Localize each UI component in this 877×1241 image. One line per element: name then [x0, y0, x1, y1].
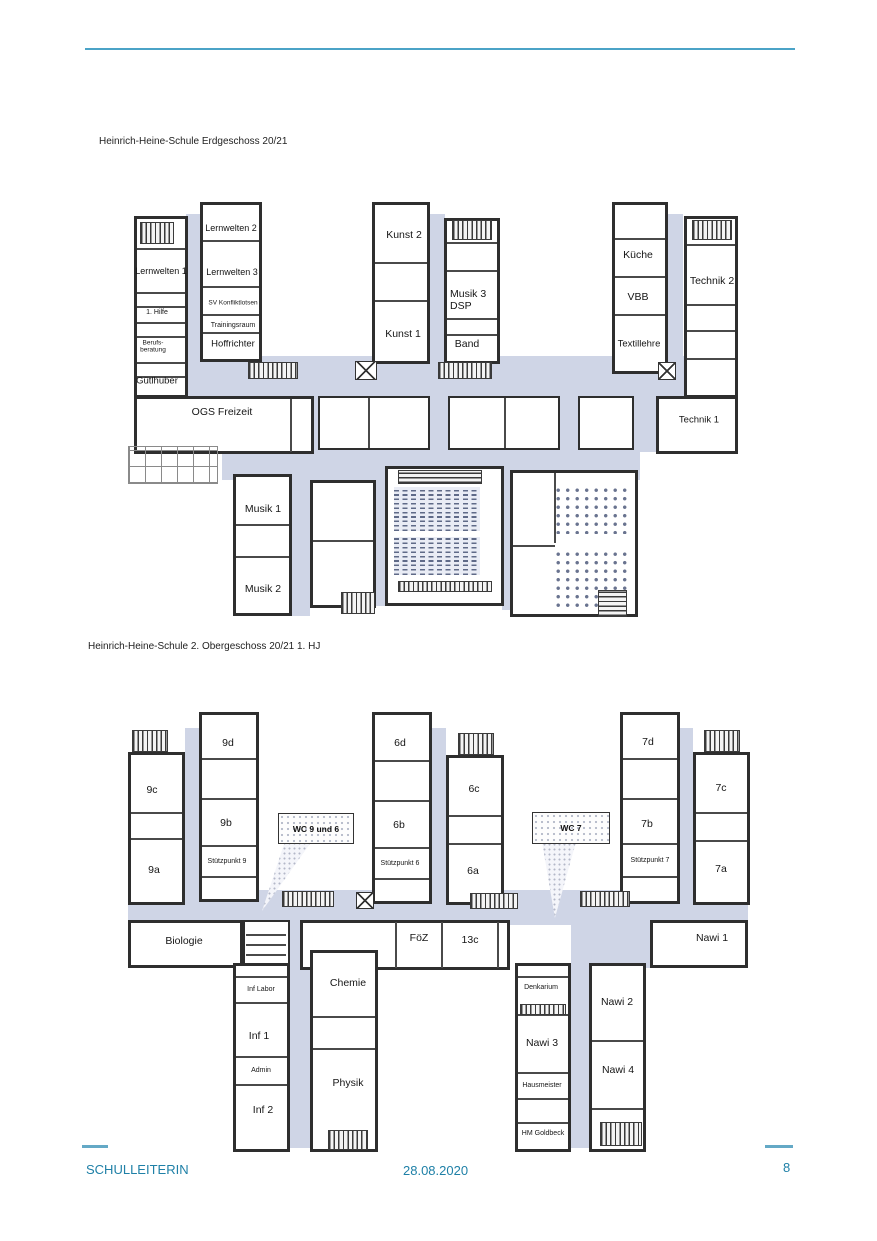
room-label-7d: 7d	[642, 736, 654, 748]
corridor-segment	[430, 396, 448, 452]
wall-line	[236, 556, 289, 558]
wall-line	[137, 322, 185, 324]
seating-rows	[394, 487, 480, 531]
room-label-biologie: Biologie	[165, 935, 202, 947]
wall-line	[449, 843, 501, 845]
wall-line	[375, 800, 429, 802]
stairs-icon	[580, 891, 630, 907]
room-label-9d: 9d	[222, 737, 234, 749]
room-label-9c: 9c	[146, 784, 157, 796]
room-label-stuetzpunkt7: Stützpunkt 7	[631, 857, 670, 865]
room-label-band: Band	[455, 338, 480, 350]
callout-wc-9-und-6: WC 9 und 6	[278, 813, 354, 844]
f2-wing9-left-column	[128, 752, 185, 905]
room-label-lernwelten2: Lernwelten 2	[205, 223, 257, 233]
wall-line	[441, 922, 443, 968]
room-label-stuetzpunkt6: Stützpunkt 6	[381, 860, 420, 868]
room-label-nawi2: Nawi 2	[601, 996, 633, 1008]
f2-wing6-right-column	[446, 755, 504, 905]
room-label-9b: 9b	[220, 817, 232, 829]
room-label-textillehre: Textillehre	[618, 340, 661, 351]
footer-date: 28.08.2020	[403, 1163, 468, 1178]
callout-wc-7: WC 7	[532, 812, 610, 844]
wall-line	[592, 1040, 643, 1042]
corridor-segment	[589, 918, 650, 968]
wall-line	[202, 758, 256, 760]
footer-author: SCHULLEITERIN	[86, 1162, 189, 1177]
wall-line	[615, 314, 665, 316]
room-label-physik: Physik	[333, 1077, 364, 1089]
floor2-title: Heinrich-Heine-Schule 2. Obergeschoss 20…	[88, 641, 320, 652]
room-label-nawi4: Nawi 4	[602, 1064, 634, 1076]
room-label-technik1: Technik 1	[679, 416, 719, 427]
wall-line	[447, 334, 497, 336]
room-label-erste-hilfe: 1. Hilfe	[146, 309, 168, 317]
wall-line	[623, 843, 677, 845]
wall-line	[518, 1098, 568, 1100]
room-label-nawi3: Nawi 3	[526, 1037, 558, 1049]
room-label-7b: 7b	[641, 818, 653, 830]
wall-line	[504, 398, 506, 448]
stairs-icon	[282, 891, 334, 907]
room-label-nawi1: Nawi 1	[696, 932, 728, 944]
corridor-segment	[666, 214, 683, 364]
wall-line	[137, 292, 185, 294]
room-label-inf-labor: Inf Labor	[247, 986, 275, 994]
wall-line	[687, 358, 735, 360]
exterior-steps	[128, 446, 218, 484]
document-page: Heinrich-Heine-Schule Erdgeschoss 20/21	[0, 0, 877, 1241]
corridor-segment	[185, 728, 199, 896]
denkarium-bench-icon	[520, 1004, 566, 1015]
stairs-icon	[132, 730, 168, 752]
wall-line	[203, 286, 259, 288]
wall-line	[375, 262, 427, 264]
stairs-icon	[248, 362, 298, 379]
wall-line	[375, 878, 429, 880]
wall-line	[447, 318, 497, 320]
wall-line	[687, 330, 735, 332]
corridor-segment	[560, 396, 578, 452]
room-label-kueche: Küche	[623, 249, 653, 261]
footer-dash-right	[765, 1145, 793, 1148]
wall-line	[518, 1122, 568, 1124]
wall-line	[137, 362, 185, 364]
floor1-title: Heinrich-Heine-Schule Erdgeschoss 20/21	[99, 136, 287, 147]
stairs-icon	[470, 893, 518, 909]
wall-line	[623, 798, 677, 800]
wall-line	[137, 306, 185, 308]
wall-line	[137, 336, 185, 338]
wall-line	[696, 812, 747, 814]
stairs-icon	[452, 220, 492, 240]
footer-dash-left	[82, 1145, 108, 1148]
wall-line	[236, 1002, 287, 1004]
wall-line	[375, 300, 427, 302]
wall-line	[313, 1048, 375, 1050]
elevator-icon	[355, 361, 377, 380]
wall-line	[687, 304, 735, 306]
f1-block-mid-rooms-3	[578, 396, 634, 450]
room-label-musik1: Musik 1	[245, 503, 281, 515]
room-label-6b: 6b	[393, 819, 405, 831]
wall-line	[246, 944, 286, 946]
room-label-inf1: Inf 1	[249, 1030, 269, 1042]
wall-line	[592, 1108, 643, 1110]
wall-line	[236, 524, 289, 526]
wall-line	[236, 1056, 287, 1058]
room-label-denkarium: Denkarium	[524, 984, 558, 992]
room-label-musik3-dsp: Musik 3 DSP	[450, 288, 498, 312]
wall-line	[615, 238, 665, 240]
room-label-7a: 7a	[715, 863, 727, 875]
wall-line	[137, 248, 185, 250]
wall-line	[696, 840, 747, 842]
room-label-lernwelten3: Lernwelten 3	[206, 267, 258, 277]
corridor-segment	[292, 474, 310, 616]
wall-line	[623, 876, 677, 878]
wall-line	[615, 276, 665, 278]
header-rule	[85, 48, 795, 50]
room-label-6a: 6a	[467, 865, 479, 877]
room-label-vbb: VBB	[627, 291, 648, 303]
wall-line	[447, 270, 497, 272]
room-label-berufsberatung: Berufs-beratung	[131, 340, 175, 355]
wall-line	[236, 976, 287, 978]
room-label-sv-konfliktlotsen: SV Konfliktlotsen	[207, 299, 259, 306]
wall-line	[203, 332, 259, 334]
room-label-7c: 7c	[715, 782, 726, 794]
wall-line	[687, 244, 735, 246]
elevator-icon	[658, 362, 676, 380]
corridor-segment	[634, 396, 656, 452]
wall-line	[623, 758, 677, 760]
wall-line	[313, 540, 373, 542]
wall-line	[368, 398, 370, 448]
wall-line	[395, 922, 397, 968]
room-label-guetlhuber: Gütlhuber	[136, 377, 178, 388]
wall-line	[313, 1016, 375, 1018]
f2-wing7-right-column	[693, 752, 750, 905]
wall-line	[497, 922, 499, 968]
wall-line	[246, 934, 286, 936]
room-label-hm-goldbeck: HM Goldbeck	[522, 1130, 564, 1138]
room-label-kunst2: Kunst 2	[386, 229, 422, 241]
wall-line	[202, 798, 256, 800]
stairs-icon	[458, 733, 494, 755]
wall-line	[131, 838, 182, 840]
room-label-admin: Admin	[251, 1067, 271, 1075]
room-label-technik2: Technik 2	[690, 275, 734, 287]
wall-line	[236, 1084, 287, 1086]
wall-line	[449, 815, 501, 817]
wall-line	[202, 876, 256, 878]
room-label-lernwelten1: Lernwelten 1	[135, 266, 187, 276]
wall-line	[203, 314, 259, 316]
wall-line	[513, 545, 555, 547]
wall-line	[518, 976, 568, 978]
wall-line	[518, 1072, 568, 1074]
room-label-foez: FöZ	[410, 932, 429, 944]
stairs-icon	[438, 362, 492, 379]
stairs-icon	[328, 1130, 368, 1150]
stairs-icon	[140, 222, 174, 244]
f1-block-lower-center	[310, 480, 376, 608]
wall-line	[202, 845, 256, 847]
wall-line	[131, 812, 182, 814]
corridor-segment	[680, 728, 693, 896]
elevator-icon	[356, 892, 374, 909]
room-label-6c: 6c	[468, 783, 479, 795]
corridor-segment	[428, 214, 445, 360]
room-label-stuetzpunkt9: Stützpunkt 9	[208, 858, 247, 866]
f1-block-mid-rooms-1	[318, 396, 430, 450]
room-label-13c: 13c	[462, 934, 479, 946]
callout-wc-7-label: WC 7	[560, 823, 581, 833]
stairs-icon	[600, 1122, 642, 1146]
room-label-hoffrichter: Hoffrichter	[211, 340, 255, 351]
stairs-icon	[598, 590, 627, 617]
footer-page-number: 8	[783, 1160, 790, 1175]
room-label-6d: 6d	[394, 737, 406, 749]
wall-line	[375, 760, 429, 762]
wall-line	[375, 847, 429, 849]
room-label-kunst1: Kunst 1	[385, 328, 421, 340]
wall-line	[203, 240, 259, 242]
table-dots	[556, 488, 632, 534]
corridor-segment	[186, 214, 200, 360]
wall-line	[246, 954, 286, 956]
room-label-chemie: Chemie	[330, 977, 366, 989]
room-label-trainingsraum: Trainingsraum	[211, 322, 255, 330]
room-label-9a: 9a	[148, 864, 160, 876]
corridor-segment	[571, 920, 589, 1148]
room-label-hausmeister: Hausmeister	[522, 1082, 561, 1090]
corridor-segment	[432, 728, 446, 896]
stage-icon	[398, 470, 482, 484]
room-label-ogs-freizeit: OGS Freizeit	[192, 406, 253, 418]
room-label-inf2: Inf 2	[253, 1104, 273, 1116]
seating-rows	[394, 537, 480, 575]
stairs-icon	[692, 220, 732, 240]
wall-line	[290, 399, 292, 452]
stairs-icon	[704, 730, 740, 752]
stairs-icon	[341, 592, 375, 614]
wall-line	[447, 242, 497, 244]
retractable-seating-icon	[398, 581, 492, 592]
callout-wc-9-und-6-label: WC 9 und 6	[293, 824, 339, 834]
room-label-musik2: Musik 2	[245, 583, 281, 595]
